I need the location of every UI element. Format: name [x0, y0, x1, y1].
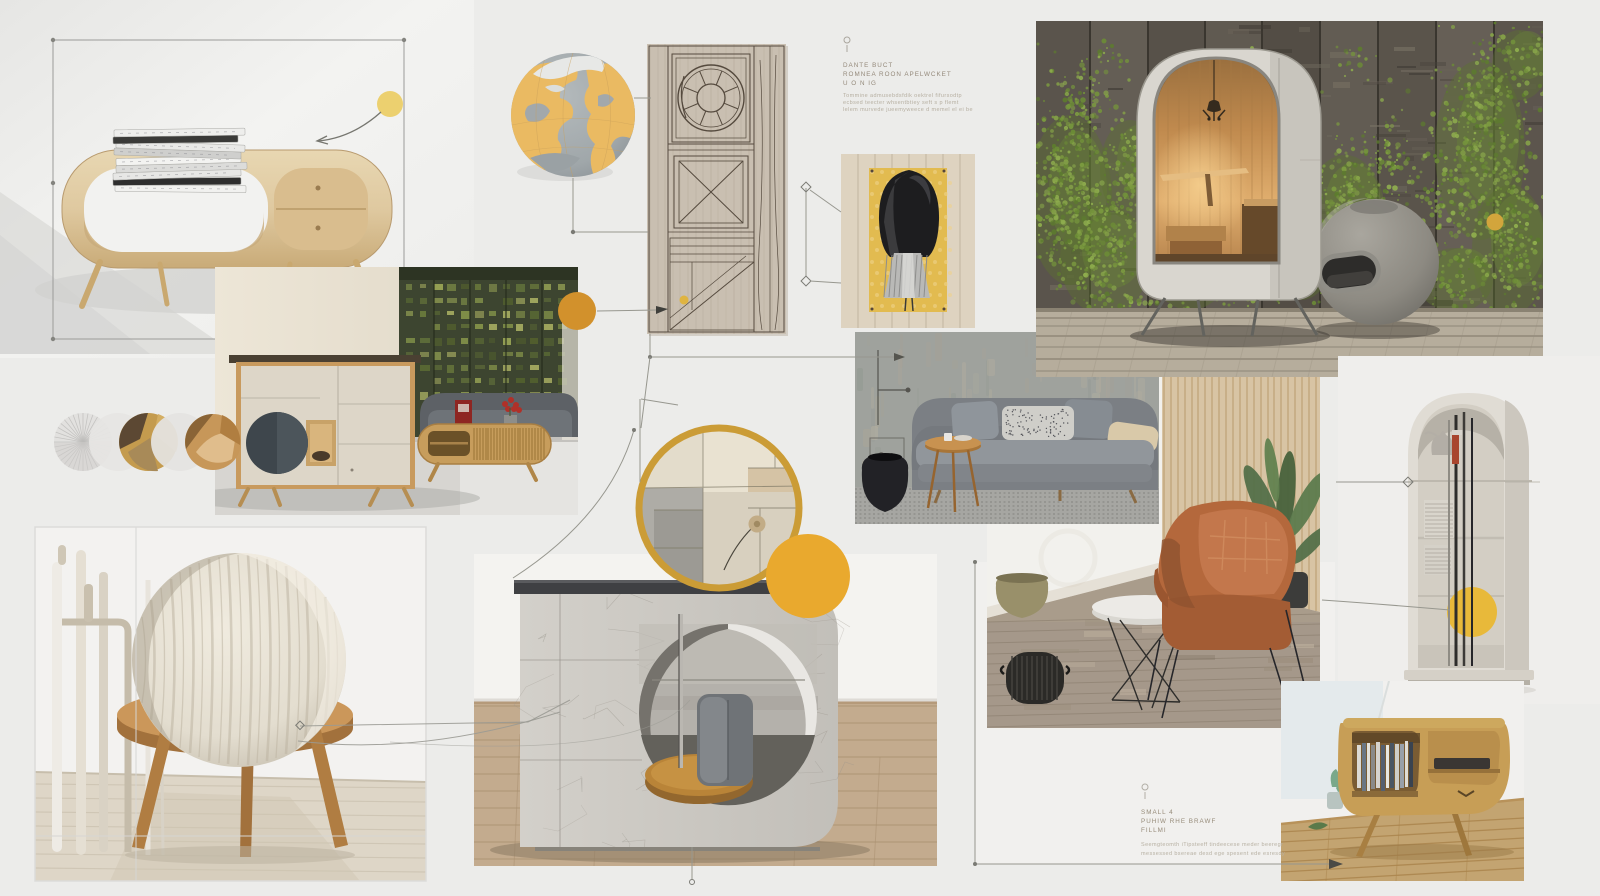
svg-text:messessed bsereae desd ege spe: messessed bsereae desd ege spesent ede e…: [1141, 851, 1285, 857]
svg-text:U O N IG: U O N IG: [843, 80, 877, 87]
svg-text:Seemgteomth iTipsteeff tindeec: Seemgteomth iTipsteeff tindeecese meder …: [1141, 842, 1283, 848]
svg-text:Tommine admusebdsfdik oektrel: Tommine admusebdsfdik oektrel fifursodtp: [843, 93, 962, 99]
svg-text:ROMNEA ROON APELWCKET: ROMNEA ROON APELWCKET: [843, 71, 952, 78]
svg-text:lelem murvede jueemyweece d me: lelem murvede jueemyweece d memel el ei …: [843, 107, 973, 113]
svg-text:SMALL 4: SMALL 4: [1141, 809, 1174, 816]
svg-text:DANTE BUCT: DANTE BUCT: [843, 62, 893, 69]
svg-text:FILLMI: FILLMI: [1141, 827, 1167, 834]
svg-text:ecbsed teecter whsentbtiey sef: ecbsed teecter whsentbtiey seft s p flem…: [843, 100, 959, 106]
svg-text:PUHIW RHE BRAWF: PUHIW RHE BRAWF: [1141, 818, 1216, 825]
